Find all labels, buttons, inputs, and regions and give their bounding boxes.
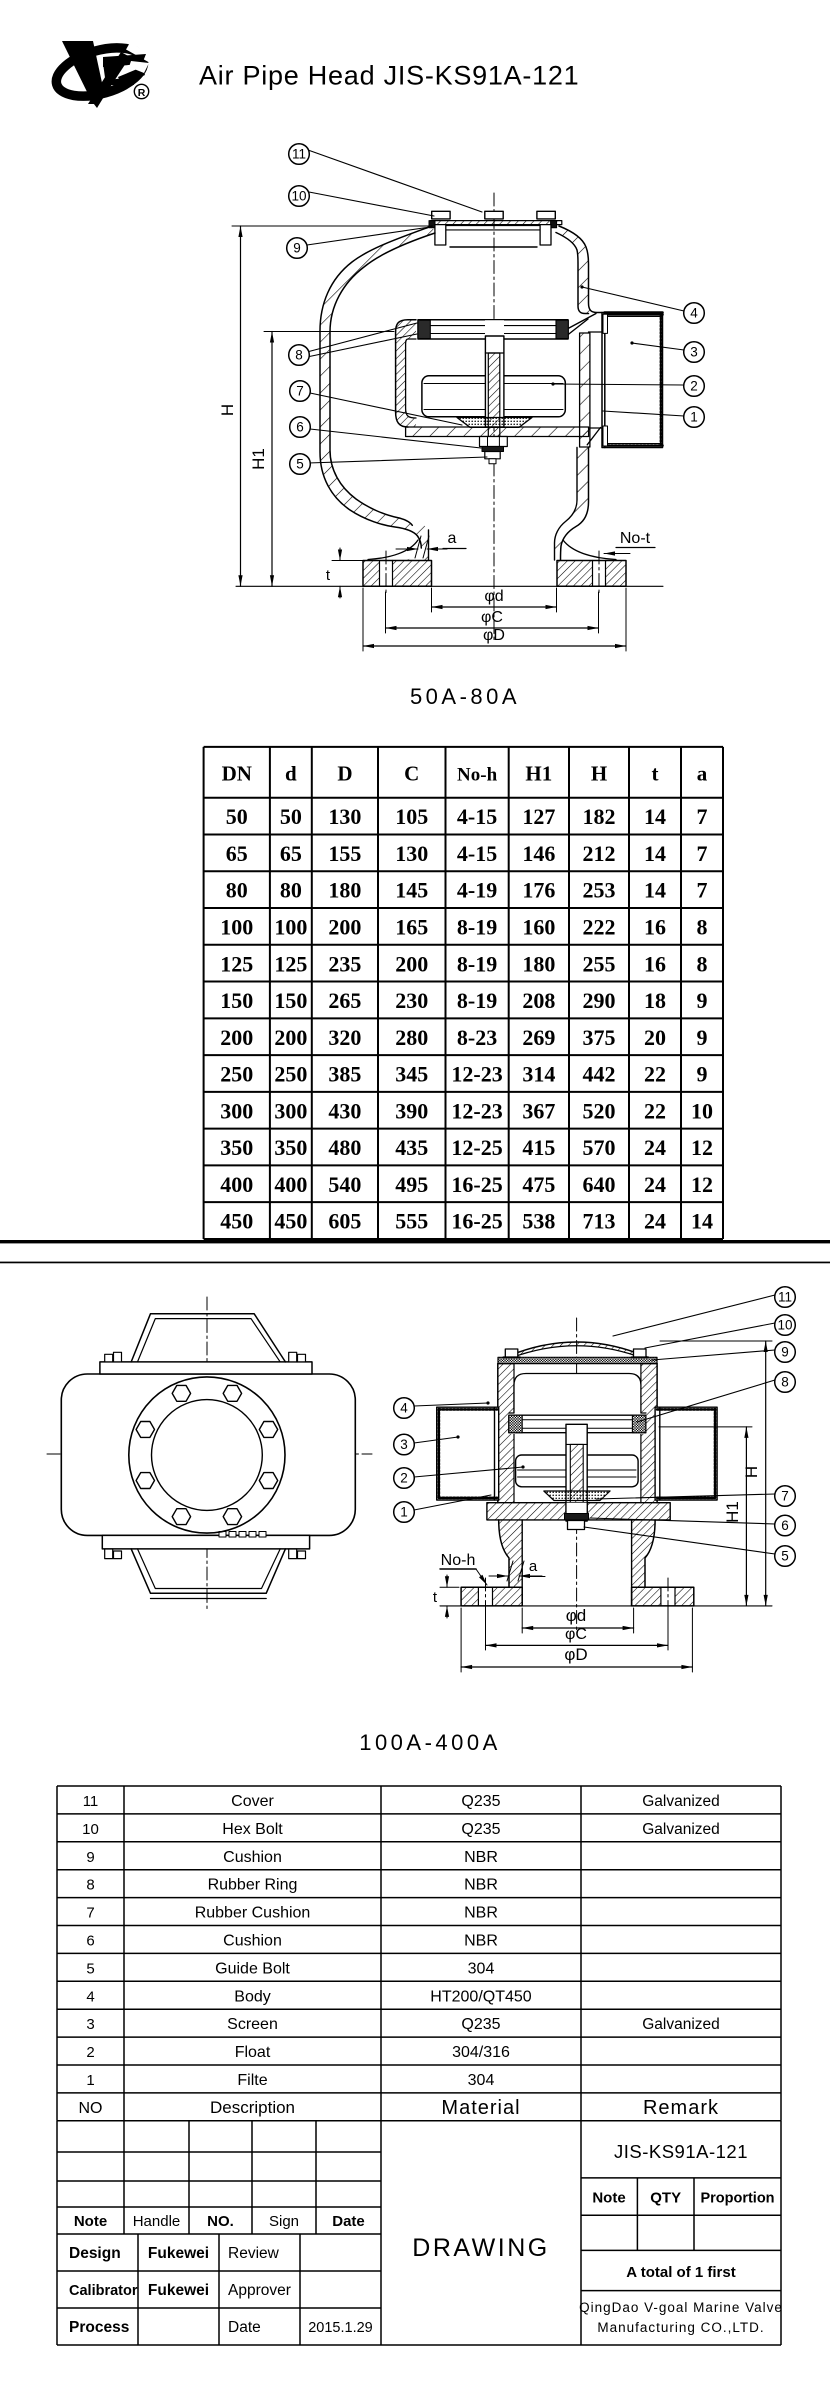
svg-text:200: 200 xyxy=(274,1025,307,1050)
svg-text:Cushion: Cushion xyxy=(223,1849,282,1866)
svg-text:3: 3 xyxy=(400,1437,408,1452)
svg-text:375: 375 xyxy=(583,1025,616,1050)
svg-text:150: 150 xyxy=(220,988,253,1013)
svg-text:φD: φD xyxy=(564,1645,587,1664)
svg-text:10: 10 xyxy=(82,1821,99,1838)
svg-text:6: 6 xyxy=(86,1933,94,1950)
svg-text:φd: φd xyxy=(566,1606,586,1625)
svg-text:Q235: Q235 xyxy=(461,1793,500,1810)
svg-text:3: 3 xyxy=(690,345,698,360)
svg-text:10: 10 xyxy=(777,1318,792,1333)
svg-text:280: 280 xyxy=(395,1025,428,1050)
svg-text:8-23: 8-23 xyxy=(457,1025,497,1050)
svg-text:290: 290 xyxy=(583,988,616,1013)
svg-text:Galvanized: Galvanized xyxy=(642,1793,720,1810)
svg-text:a: a xyxy=(448,530,457,547)
svg-text:222: 222 xyxy=(583,915,616,940)
svg-text:A total of 1 first: A total of 1 first xyxy=(626,2264,735,2281)
svg-text:Fukewei: Fukewei xyxy=(148,2282,209,2299)
svg-text:16-25: 16-25 xyxy=(451,1209,502,1234)
svg-text:10: 10 xyxy=(291,189,306,204)
svg-text:Galvanized: Galvanized xyxy=(642,1821,720,1838)
svg-text:555: 555 xyxy=(395,1209,428,1234)
svg-text:Proportion: Proportion xyxy=(700,2191,774,2207)
svg-text:100: 100 xyxy=(274,915,307,940)
svg-text:5: 5 xyxy=(781,1549,789,1564)
svg-text:2015.1.29: 2015.1.29 xyxy=(308,2320,373,2336)
svg-text:12-25: 12-25 xyxy=(451,1135,502,1160)
svg-text:16: 16 xyxy=(644,915,666,940)
svg-text:14: 14 xyxy=(644,878,666,903)
svg-text:9: 9 xyxy=(293,241,301,256)
svg-text:d: d xyxy=(285,761,297,785)
svg-text:50A-80A: 50A-80A xyxy=(410,684,520,709)
svg-text:No-h: No-h xyxy=(441,1552,476,1569)
svg-text:JIS-KS91A-121: JIS-KS91A-121 xyxy=(614,2141,748,2162)
svg-text:200: 200 xyxy=(220,1025,253,1050)
svg-text:7: 7 xyxy=(296,384,304,399)
svg-text:12: 12 xyxy=(691,1172,713,1197)
svg-text:H: H xyxy=(591,761,607,785)
svg-text:130: 130 xyxy=(328,804,361,829)
svg-text:Body: Body xyxy=(234,1988,270,2005)
svg-text:No-h: No-h xyxy=(457,764,498,785)
svg-text:2: 2 xyxy=(400,1471,408,1486)
svg-text:t: t xyxy=(652,761,659,785)
svg-text:146: 146 xyxy=(522,841,555,866)
svg-text:24: 24 xyxy=(644,1209,666,1234)
svg-text:8-19: 8-19 xyxy=(457,988,497,1013)
svg-text:Manufacturing CO.,LTD.: Manufacturing CO.,LTD. xyxy=(597,2320,764,2335)
svg-text:182: 182 xyxy=(583,804,616,829)
svg-text:200: 200 xyxy=(395,951,428,976)
svg-text:24: 24 xyxy=(644,1172,666,1197)
svg-text:442: 442 xyxy=(583,1062,616,1087)
svg-text:8-19: 8-19 xyxy=(457,915,497,940)
svg-text:Rubber Cushion: Rubber Cushion xyxy=(195,1905,311,1922)
svg-text:Cover: Cover xyxy=(231,1793,274,1810)
svg-text:570: 570 xyxy=(583,1135,616,1160)
svg-text:253: 253 xyxy=(583,878,616,903)
svg-text:C: C xyxy=(404,761,419,785)
svg-text:385: 385 xyxy=(328,1062,361,1087)
svg-text:8: 8 xyxy=(295,348,303,363)
svg-text:265: 265 xyxy=(328,988,361,1013)
svg-text:6: 6 xyxy=(781,1518,789,1533)
svg-text:12-23: 12-23 xyxy=(451,1098,502,1123)
svg-text:NBR: NBR xyxy=(464,1877,498,1894)
svg-text:415: 415 xyxy=(522,1135,555,1160)
svg-text:50: 50 xyxy=(226,804,248,829)
svg-text:200: 200 xyxy=(328,915,361,940)
svg-text:10: 10 xyxy=(691,1098,713,1123)
svg-text:18: 18 xyxy=(644,988,666,1013)
svg-text:NBR: NBR xyxy=(464,1905,498,1922)
svg-text:NO.: NO. xyxy=(207,2213,234,2230)
svg-text:495: 495 xyxy=(395,1172,428,1197)
svg-text:105: 105 xyxy=(395,804,428,829)
svg-text:80: 80 xyxy=(226,878,248,903)
svg-text:480: 480 xyxy=(328,1135,361,1160)
svg-text:250: 250 xyxy=(274,1062,307,1087)
svg-text:9: 9 xyxy=(697,1025,708,1050)
svg-text:640: 640 xyxy=(583,1172,616,1197)
svg-text:20: 20 xyxy=(644,1025,666,1050)
svg-text:Design: Design xyxy=(69,2245,121,2262)
svg-text:176: 176 xyxy=(522,878,555,903)
svg-text:208: 208 xyxy=(522,988,555,1013)
svg-text:230: 230 xyxy=(395,988,428,1013)
svg-text:165: 165 xyxy=(395,915,428,940)
svg-text:304: 304 xyxy=(468,2072,495,2089)
svg-text:127: 127 xyxy=(522,804,555,829)
svg-text:130: 130 xyxy=(395,841,428,866)
svg-text:Rubber Ring: Rubber Ring xyxy=(208,1877,298,1894)
svg-text:100: 100 xyxy=(220,915,253,940)
svg-text:Material: Material xyxy=(441,2097,520,2119)
svg-text:400: 400 xyxy=(220,1172,253,1197)
svg-text:a: a xyxy=(697,761,708,785)
svg-text:65: 65 xyxy=(226,841,248,866)
svg-text:7: 7 xyxy=(697,804,708,829)
svg-text:345: 345 xyxy=(395,1062,428,1087)
svg-text:Review: Review xyxy=(228,2245,280,2262)
svg-text:14: 14 xyxy=(644,841,666,866)
svg-text:HT200/QT450: HT200/QT450 xyxy=(430,1988,531,2005)
svg-text:5: 5 xyxy=(86,1960,94,1977)
svg-text:9: 9 xyxy=(697,988,708,1013)
svg-text:H1: H1 xyxy=(723,1501,742,1523)
svg-text:4: 4 xyxy=(400,1401,408,1416)
svg-text:4: 4 xyxy=(86,1988,94,2005)
svg-text:Galvanized: Galvanized xyxy=(642,2016,720,2033)
svg-text:8-19: 8-19 xyxy=(457,951,497,976)
svg-text:φC: φC xyxy=(481,609,503,626)
svg-text:Handle: Handle xyxy=(133,2213,181,2230)
svg-text:Date: Date xyxy=(332,2213,365,2230)
svg-text:Date: Date xyxy=(228,2319,261,2336)
svg-text:1: 1 xyxy=(86,2072,94,2089)
svg-text:DRAWING: DRAWING xyxy=(412,2234,549,2262)
svg-text:Note: Note xyxy=(74,2213,107,2230)
svg-text:235: 235 xyxy=(328,951,361,976)
svg-text:50: 50 xyxy=(280,804,302,829)
svg-text:475: 475 xyxy=(522,1172,555,1197)
svg-text:DN: DN xyxy=(222,761,252,785)
svg-text:φC: φC xyxy=(565,1626,587,1643)
svg-text:Guide Bolt: Guide Bolt xyxy=(215,1960,290,1977)
svg-text:Hex Bolt: Hex Bolt xyxy=(222,1821,283,1838)
svg-text:4-15: 4-15 xyxy=(457,804,497,829)
svg-text:320: 320 xyxy=(328,1025,361,1050)
svg-text:11: 11 xyxy=(778,1290,792,1305)
svg-text:No-t: No-t xyxy=(620,530,651,547)
svg-text:H: H xyxy=(742,1466,761,1478)
svg-text:Screen: Screen xyxy=(227,2016,278,2033)
svg-text:NBR: NBR xyxy=(464,1933,498,1950)
svg-text:3: 3 xyxy=(86,2016,94,2033)
svg-text:Fukewei: Fukewei xyxy=(148,2245,209,2262)
svg-text:450: 450 xyxy=(274,1209,307,1234)
svg-text:14: 14 xyxy=(644,804,666,829)
svg-text:Cushion: Cushion xyxy=(223,1933,282,1950)
svg-text:Note: Note xyxy=(592,2190,625,2207)
svg-text:300: 300 xyxy=(274,1098,307,1123)
svg-text:11: 11 xyxy=(83,1793,99,1810)
svg-text:5: 5 xyxy=(296,457,304,472)
svg-text:304: 304 xyxy=(468,1960,495,1977)
svg-text:6: 6 xyxy=(296,420,304,435)
svg-text:QTY: QTY xyxy=(650,2190,681,2207)
svg-text:H1: H1 xyxy=(525,761,552,785)
svg-text:80: 80 xyxy=(280,878,302,903)
svg-text:2: 2 xyxy=(690,379,698,394)
svg-text:φd: φd xyxy=(484,588,503,605)
svg-text:a: a xyxy=(529,1558,538,1575)
svg-text:713: 713 xyxy=(583,1209,616,1234)
svg-text:11: 11 xyxy=(292,147,306,162)
svg-text:605: 605 xyxy=(328,1209,361,1234)
svg-text:8: 8 xyxy=(697,915,708,940)
svg-text:314: 314 xyxy=(522,1062,555,1087)
svg-text:300: 300 xyxy=(220,1098,253,1123)
svg-text:180: 180 xyxy=(328,878,361,903)
svg-text:1: 1 xyxy=(690,410,698,425)
svg-text:160: 160 xyxy=(522,915,555,940)
svg-text:Air Pipe Head JIS-KS91A-121: Air Pipe Head JIS-KS91A-121 xyxy=(199,61,579,91)
svg-text:7: 7 xyxy=(697,878,708,903)
svg-text:367: 367 xyxy=(522,1098,555,1123)
svg-text:D: D xyxy=(337,761,352,785)
svg-text:8: 8 xyxy=(781,1375,789,1390)
svg-text:8: 8 xyxy=(697,951,708,976)
svg-text:12: 12 xyxy=(691,1135,713,1160)
svg-text:125: 125 xyxy=(220,951,253,976)
svg-text:R: R xyxy=(138,87,146,99)
svg-text:4-15: 4-15 xyxy=(457,841,497,866)
svg-text:4-19: 4-19 xyxy=(457,878,497,903)
svg-text:Process: Process xyxy=(69,2319,129,2336)
svg-text:65: 65 xyxy=(280,841,302,866)
svg-text:7: 7 xyxy=(86,1905,94,1922)
svg-text:9: 9 xyxy=(697,1062,708,1087)
svg-text:14: 14 xyxy=(691,1209,713,1234)
svg-text:H: H xyxy=(218,404,237,416)
svg-text:125: 125 xyxy=(274,951,307,976)
svg-text:269: 269 xyxy=(522,1025,555,1050)
svg-text:Description: Description xyxy=(210,2098,295,2117)
svg-text:435: 435 xyxy=(395,1135,428,1160)
svg-text:NBR: NBR xyxy=(464,1849,498,1866)
svg-text:Calibrator: Calibrator xyxy=(69,2283,138,2299)
svg-text:Float: Float xyxy=(235,2044,271,2061)
svg-text:φD: φD xyxy=(483,627,505,644)
svg-text:Filte: Filte xyxy=(237,2072,267,2089)
svg-text:2: 2 xyxy=(86,2044,94,2061)
svg-text:7: 7 xyxy=(697,841,708,866)
svg-text:390: 390 xyxy=(395,1098,428,1123)
svg-text:Approver: Approver xyxy=(228,2282,291,2299)
svg-text:4: 4 xyxy=(690,306,698,321)
svg-text:145: 145 xyxy=(395,878,428,903)
svg-text:22: 22 xyxy=(644,1098,666,1123)
svg-text:450: 450 xyxy=(220,1209,253,1234)
svg-text:350: 350 xyxy=(274,1135,307,1160)
svg-text:155: 155 xyxy=(328,841,361,866)
svg-text:540: 540 xyxy=(328,1172,361,1197)
svg-text:24: 24 xyxy=(644,1135,666,1160)
svg-text:Q235: Q235 xyxy=(461,2016,500,2033)
svg-text:9: 9 xyxy=(781,1345,789,1360)
svg-text:520: 520 xyxy=(583,1098,616,1123)
svg-text:7: 7 xyxy=(781,1489,789,1504)
svg-text:22: 22 xyxy=(644,1062,666,1087)
svg-text:400: 400 xyxy=(274,1172,307,1197)
svg-text:QingDao V-goal Marine Valve: QingDao V-goal Marine Valve xyxy=(579,2300,783,2315)
svg-text:1: 1 xyxy=(400,1505,408,1520)
svg-text:100A-400A: 100A-400A xyxy=(359,1730,501,1755)
svg-text:16: 16 xyxy=(644,951,666,976)
svg-text:Sign: Sign xyxy=(269,2213,299,2230)
svg-text:150: 150 xyxy=(274,988,307,1013)
svg-text:180: 180 xyxy=(522,951,555,976)
svg-text:255: 255 xyxy=(583,951,616,976)
svg-text:430: 430 xyxy=(328,1098,361,1123)
svg-text:304/316: 304/316 xyxy=(452,2044,510,2061)
svg-text:8: 8 xyxy=(86,1877,94,1894)
svg-text:NO: NO xyxy=(79,2100,103,2117)
svg-text:12-23: 12-23 xyxy=(451,1062,502,1087)
svg-text:Q235: Q235 xyxy=(461,1821,500,1838)
svg-text:538: 538 xyxy=(522,1209,555,1234)
svg-text:350: 350 xyxy=(220,1135,253,1160)
svg-text:Remark: Remark xyxy=(643,2097,719,2119)
svg-text:250: 250 xyxy=(220,1062,253,1087)
svg-text:16-25: 16-25 xyxy=(451,1172,502,1197)
svg-text:H1: H1 xyxy=(249,448,268,470)
svg-text:212: 212 xyxy=(583,841,616,866)
svg-text:9: 9 xyxy=(86,1849,94,1866)
